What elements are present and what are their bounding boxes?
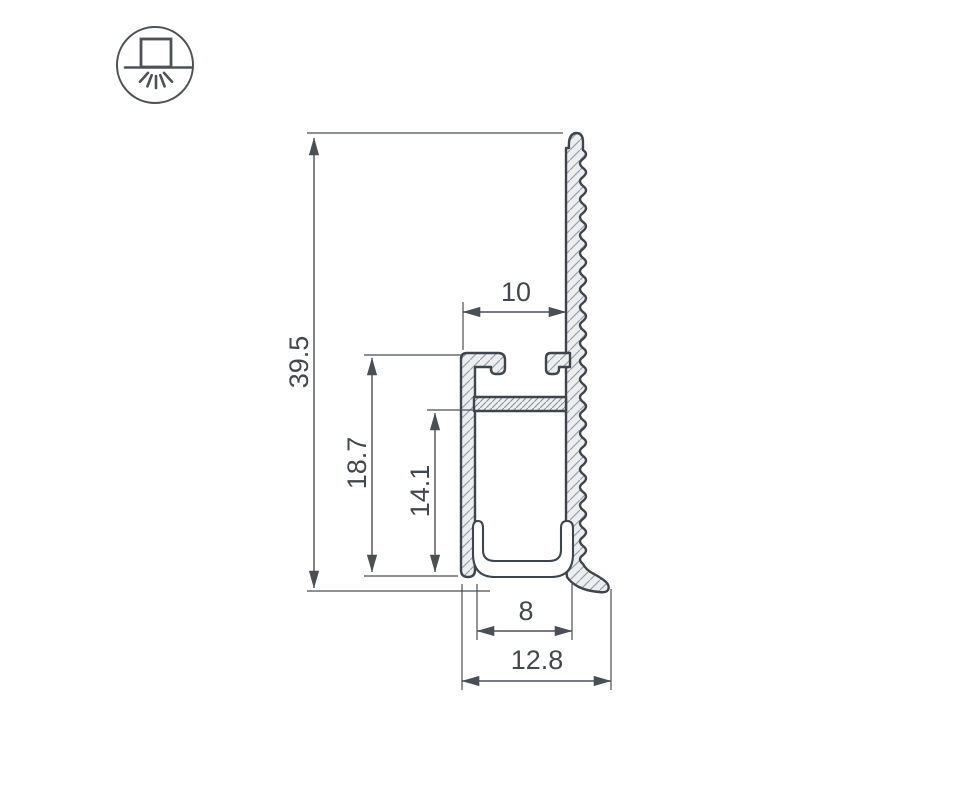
dim-top-slot-width: 10	[463, 277, 566, 312]
dim-label-wall-height: 18.7	[342, 437, 372, 490]
profile-cross-section	[461, 133, 609, 592]
dim-total-height: 39.5	[284, 138, 314, 588]
drawing-page: 39.5 18.7 14.1 10 8 12.8	[0, 0, 978, 800]
dim-base-width: 12.8	[462, 645, 611, 681]
technical-drawing: 39.5 18.7 14.1 10 8 12.8	[0, 0, 978, 800]
dim-label-top-slot-width: 10	[501, 277, 531, 307]
dim-cavity-height: 14.1	[405, 413, 435, 572]
dim-wall-height: 18.7	[342, 358, 372, 572]
profile-u-channel	[473, 521, 573, 577]
dim-inner-width: 8	[477, 596, 572, 631]
dim-label-total-height: 39.5	[284, 336, 314, 389]
dim-label-inner-width: 8	[518, 596, 533, 626]
surface-mount-downlight-icon	[117, 27, 193, 103]
dim-label-cavity-height: 14.1	[405, 465, 435, 518]
profile-web	[474, 397, 566, 411]
icon-profile-box	[141, 39, 171, 67]
dim-label-base-width: 12.8	[511, 645, 564, 675]
